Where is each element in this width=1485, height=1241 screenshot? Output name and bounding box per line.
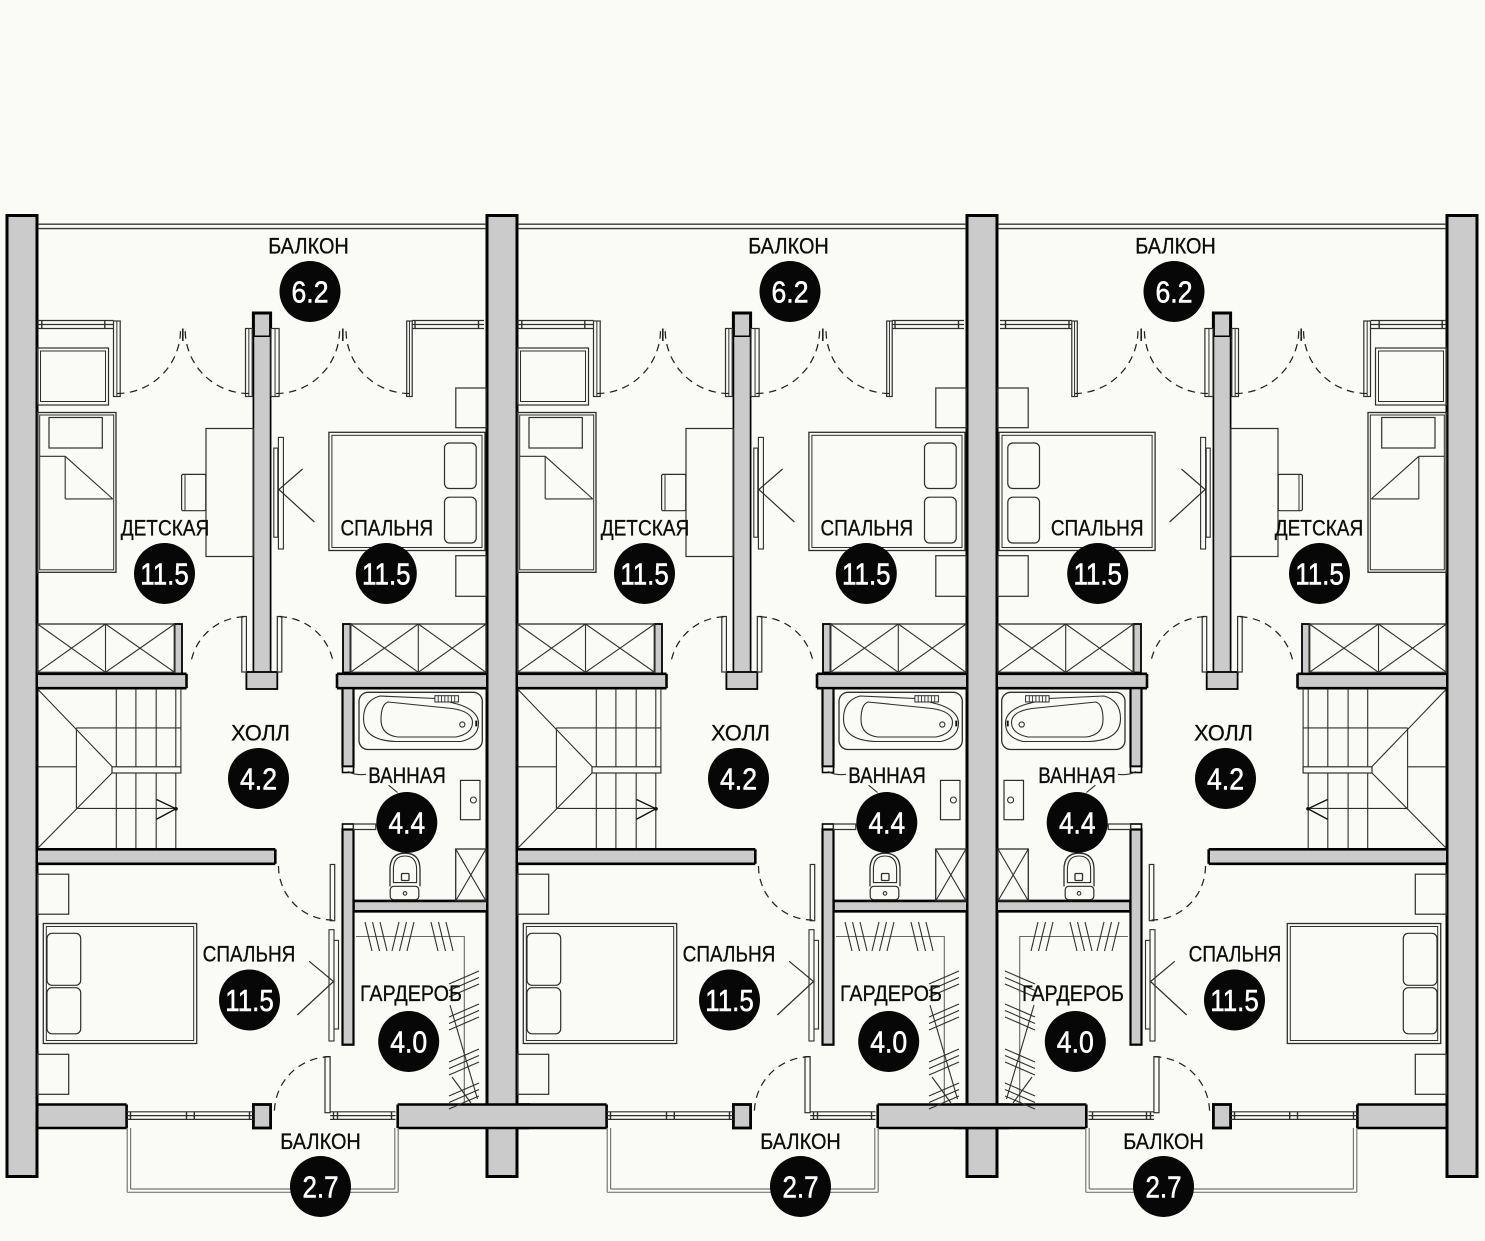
svg-text:СПАЛЬНЯ: СПАЛЬНЯ xyxy=(203,942,296,967)
svg-text:ХОЛЛ: ХОЛЛ xyxy=(711,721,770,746)
svg-text:ВАННАЯ: ВАННАЯ xyxy=(1038,763,1116,788)
svg-text:4.4: 4.4 xyxy=(869,805,906,840)
svg-text:ГАРДЕРОБ: ГАРДЕРОБ xyxy=(360,981,462,1006)
svg-text:6.2: 6.2 xyxy=(1156,274,1193,309)
svg-text:БАЛКОН: БАЛКОН xyxy=(748,234,829,259)
svg-text:БАЛКОН: БАЛКОН xyxy=(760,1129,841,1154)
svg-text:6.2: 6.2 xyxy=(292,274,329,309)
svg-text:11.5: 11.5 xyxy=(1295,556,1344,591)
svg-text:11.5: 11.5 xyxy=(140,556,189,591)
svg-text:ГАРДЕРОБ: ГАРДЕРОБ xyxy=(840,981,942,1006)
svg-text:4.2: 4.2 xyxy=(240,761,277,796)
svg-text:БАЛКОН: БАЛКОН xyxy=(1135,234,1216,259)
svg-text:ВАННАЯ: ВАННАЯ xyxy=(368,763,446,788)
svg-text:ДЕТСКАЯ: ДЕТСКАЯ xyxy=(1275,516,1364,541)
svg-text:11.5: 11.5 xyxy=(225,983,274,1018)
svg-text:СПАЛЬНЯ: СПАЛЬНЯ xyxy=(1051,516,1144,541)
svg-text:4.0: 4.0 xyxy=(870,1024,907,1059)
svg-text:2.7: 2.7 xyxy=(1146,1169,1182,1204)
svg-text:БАЛКОН: БАЛКОН xyxy=(268,234,349,259)
svg-text:11.5: 11.5 xyxy=(705,983,754,1018)
svg-text:4.0: 4.0 xyxy=(1057,1024,1094,1059)
svg-text:ВАННАЯ: ВАННАЯ xyxy=(848,763,926,788)
svg-text:СПАЛЬНЯ: СПАЛЬНЯ xyxy=(340,516,433,541)
svg-text:ХОЛЛ: ХОЛЛ xyxy=(1194,721,1253,746)
svg-text:11.5: 11.5 xyxy=(842,556,891,591)
svg-text:4.4: 4.4 xyxy=(1059,805,1096,840)
svg-text:4.2: 4.2 xyxy=(1207,761,1244,796)
svg-text:БАЛКОН: БАЛКОН xyxy=(1123,1129,1204,1154)
svg-text:4.2: 4.2 xyxy=(720,761,757,796)
svg-text:2.7: 2.7 xyxy=(303,1169,339,1204)
svg-text:11.5: 11.5 xyxy=(1210,983,1259,1018)
svg-text:4.4: 4.4 xyxy=(389,805,426,840)
svg-text:ХОЛЛ: ХОЛЛ xyxy=(231,721,290,746)
svg-text:БАЛКОН: БАЛКОН xyxy=(280,1129,361,1154)
svg-text:4.0: 4.0 xyxy=(390,1024,427,1059)
svg-text:СПАЛЬНЯ: СПАЛЬНЯ xyxy=(820,516,913,541)
svg-text:ГАРДЕРОБ: ГАРДЕРОБ xyxy=(1022,981,1124,1006)
svg-text:СПАЛЬНЯ: СПАЛЬНЯ xyxy=(1189,942,1282,967)
svg-text:СПАЛЬНЯ: СПАЛЬНЯ xyxy=(683,942,776,967)
svg-text:ДЕТСКАЯ: ДЕТСКАЯ xyxy=(601,516,690,541)
svg-text:6.2: 6.2 xyxy=(772,274,809,309)
svg-text:ДЕТСКАЯ: ДЕТСКАЯ xyxy=(121,516,210,541)
svg-text:11.5: 11.5 xyxy=(620,556,669,591)
svg-text:11.5: 11.5 xyxy=(362,556,411,591)
svg-text:2.7: 2.7 xyxy=(783,1169,819,1204)
svg-text:11.5: 11.5 xyxy=(1073,556,1122,591)
